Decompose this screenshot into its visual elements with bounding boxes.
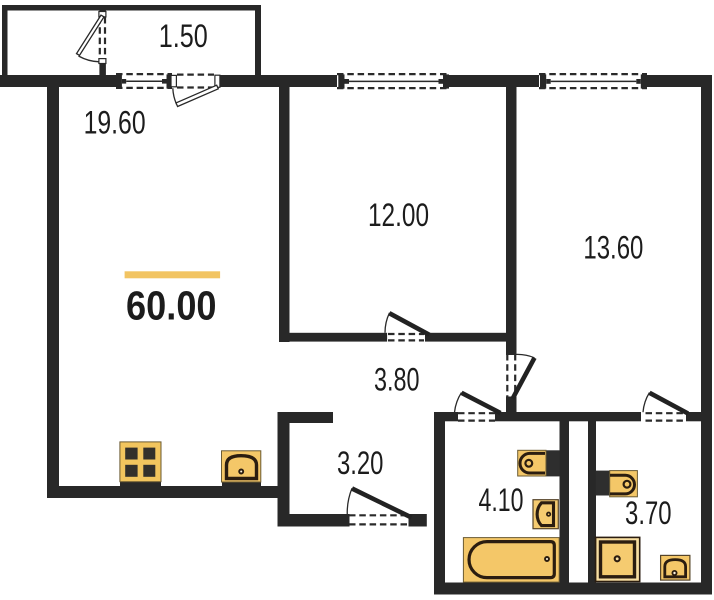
svg-text:3.20: 3.20 [337, 445, 384, 481]
svg-text:60.00: 60.00 [126, 283, 217, 329]
svg-text:3.80: 3.80 [374, 362, 420, 398]
svg-text:1.50: 1.50 [159, 18, 208, 54]
svg-text:13.60: 13.60 [583, 230, 643, 266]
svg-text:4.10: 4.10 [479, 482, 524, 518]
svg-text:12.00: 12.00 [368, 197, 429, 233]
svg-text:3.70: 3.70 [625, 495, 672, 531]
svg-text:19.60: 19.60 [84, 105, 146, 141]
